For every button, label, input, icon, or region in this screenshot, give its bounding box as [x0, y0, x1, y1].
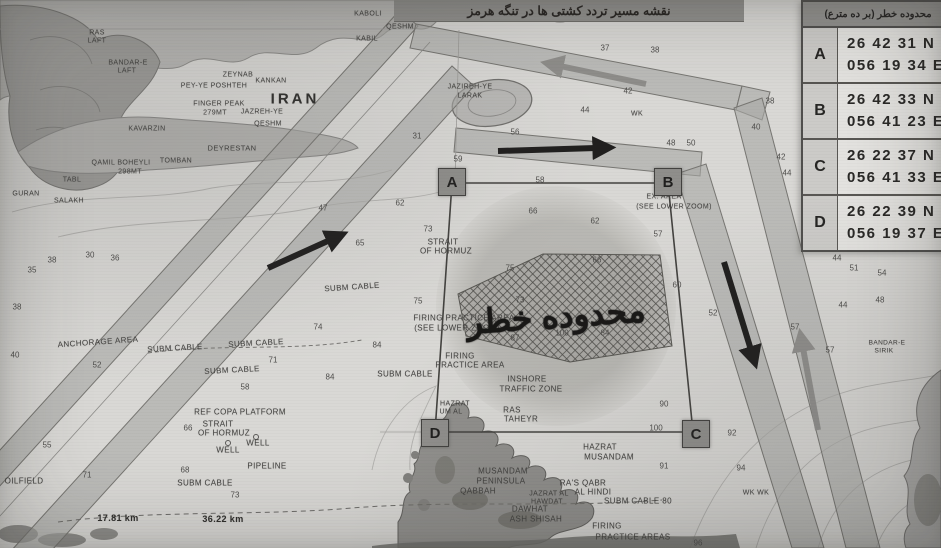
map-label: QABBAH [460, 487, 496, 496]
depth-number: 68 [181, 466, 190, 475]
depth-number: 91 [660, 462, 669, 471]
map-label: 17.81 km [97, 513, 138, 523]
depth-number: 51 [850, 264, 859, 273]
map-label: TRAFFIC ZONE [499, 385, 562, 394]
map-label: KANKAN [255, 78, 286, 85]
map-label: QESHM [386, 24, 414, 31]
depth-number: 58 [241, 383, 250, 392]
depth-number: 54 [878, 269, 887, 278]
map-label: (SEE LOWER ZOOM) [636, 204, 712, 211]
map-label: STRAIT [203, 420, 234, 429]
depth-number: 42 [624, 87, 633, 96]
depth-number: 40 [752, 123, 761, 132]
map-label: RA'S QABR [560, 479, 606, 488]
map-label: HAZRAT [583, 443, 617, 452]
coord-row-b: B 26 42 33 N 056 41 23 E [803, 84, 941, 140]
map-label: MUSANDAM [584, 453, 634, 462]
depth-number: 36 [111, 254, 120, 263]
map-label: STRAIT [428, 238, 459, 247]
map-title: نقشه مسیر تردد کشتی ها در تنگه هرمز [467, 3, 670, 18]
map-label: REF COPA PLATFORM [194, 408, 286, 417]
depth-number: 57 [791, 323, 800, 332]
depth-number: 59 [454, 155, 463, 164]
map-label: SUBM CABLE 80 [604, 497, 672, 506]
depth-number: 58 [536, 176, 545, 185]
map-label: PEY-YE POSHTEH [181, 83, 247, 90]
depth-number: 52 [93, 361, 102, 370]
depth-number: 96 [694, 539, 703, 548]
map-label: 36.22 km [202, 514, 243, 524]
map-label: SIRIK [875, 348, 894, 355]
map-label: WK [631, 111, 643, 118]
depth-number: 47 [319, 204, 328, 213]
coord-row-id: B [803, 84, 838, 138]
coord-lat: 26 22 37 N [847, 145, 941, 167]
coord-row-d: D 26 22 39 N 056 19 37 E [803, 196, 941, 250]
map-label: 298MT [118, 169, 142, 176]
corner-marker-a: A [438, 168, 466, 196]
depth-number: 44 [833, 254, 842, 263]
depth-number: 38 [48, 256, 57, 265]
depth-number: 71 [269, 356, 278, 365]
depth-number: 73 [231, 491, 240, 500]
depth-number: 71 [83, 471, 92, 480]
map-label: OF HORMUZ [420, 247, 472, 256]
depth-number: 42 [777, 153, 786, 162]
coord-lat: 26 42 31 N [847, 33, 941, 55]
map-label: FINGER PEAK [193, 101, 244, 108]
depth-number: 48 [876, 296, 885, 305]
depth-number: 57 [654, 230, 663, 239]
depth-number: 92 [728, 429, 737, 438]
map-label: RAS [503, 406, 521, 415]
map-label: UM AL [439, 409, 462, 416]
map-label: LARAK [458, 93, 483, 100]
depth-number: 100 [649, 424, 662, 433]
corner-marker-c: C [682, 420, 710, 448]
depth-number: 57 [826, 346, 835, 355]
map-label: SALAKH [54, 198, 84, 205]
map-label: PRACTICE AREAS [596, 533, 671, 542]
map-label: WK WK [743, 490, 770, 497]
map-label: WELL [216, 446, 239, 455]
depth-number: 66 [529, 207, 538, 216]
depth-number: 44 [783, 169, 792, 178]
map-label: JAZREH-YE [241, 109, 284, 116]
map-title-bar: نقشه مسیر تردد کشتی ها در تنگه هرمز [394, 0, 744, 22]
coord-lon: 056 41 23 E [847, 111, 941, 133]
coord-lon: 056 41 33 E [847, 167, 941, 189]
map-label: LAFT [88, 38, 107, 45]
coord-row-id: A [803, 28, 838, 82]
coords-table-header: محدوده خطر (بر ده مترع) [803, 2, 941, 28]
coords-table: محدوده خطر (بر ده مترع) A 26 42 31 N 056… [801, 0, 941, 252]
map-label: ZEYNAB [223, 72, 253, 79]
map-label: ASH SHISAH [510, 515, 562, 524]
map-label: INSHORE [507, 375, 546, 384]
arrow-east-black [498, 148, 596, 151]
map-label: PENINSULA [477, 477, 526, 486]
map-label: GURAN [12, 191, 39, 198]
map-label: KABIL [356, 36, 378, 43]
map-label: FIRING [592, 522, 622, 531]
coord-lon: 056 19 37 E [847, 223, 941, 245]
depth-number: 35 [28, 266, 37, 275]
corner-marker-d: D [421, 419, 449, 447]
map-label: PRACTICE AREA [435, 361, 504, 370]
map-label: TABL [63, 177, 82, 184]
depth-number: 66 [593, 256, 602, 265]
map-label: PIPELINE [247, 462, 286, 471]
depth-number: 44 [581, 106, 590, 115]
map-label: QESHM [254, 121, 282, 128]
coord-row-id: C [803, 140, 838, 194]
depth-number: 44 [839, 301, 848, 310]
coord-row-id: D [803, 196, 838, 250]
coast-detail [914, 474, 941, 526]
coord-row-c: C 26 22 37 N 056 41 33 E [803, 140, 941, 196]
depth-number: 38 [766, 97, 775, 106]
depth-number: 52 [709, 309, 718, 318]
depth-number: 30 [86, 251, 95, 260]
depth-number: 66 [184, 424, 193, 433]
depth-number: 38 [651, 46, 660, 55]
map-label: JAZRAT AL [529, 491, 569, 498]
depth-number: 75 [414, 297, 423, 306]
map-label: SUBM CABLE [177, 479, 233, 488]
map-label: DEYRESTAN [208, 144, 257, 153]
map-label: TOMBAN [160, 158, 192, 165]
depth-number: 74 [314, 323, 323, 332]
map-label: BANDAR-E [869, 340, 906, 347]
map-label: KAVARZIN [128, 126, 165, 133]
map-label: RAS [89, 30, 105, 37]
depth-number: 48 [667, 139, 676, 148]
depth-number: 37 [601, 44, 610, 53]
map-label: 279MT [203, 110, 227, 117]
depth-number: 50 [687, 139, 696, 148]
map-label: MUSANDAM [478, 467, 528, 476]
map-label: BANDAR-E [108, 60, 147, 67]
depth-number: 62 [396, 199, 405, 208]
map-label: OILFIELD [5, 477, 44, 486]
depth-number: 84 [326, 373, 335, 382]
map-label: KABOLI [354, 11, 382, 18]
map-label: DAWHAT [512, 505, 548, 514]
coord-lon: 056 19 34 E [847, 55, 941, 77]
depth-number: 40 [11, 351, 20, 360]
chart-photo: IRANSTRAITOF HORMUZSTRAITOF HORMUZSUBM C… [0, 0, 941, 548]
depth-number: 90 [660, 400, 669, 409]
depth-number: 65 [356, 239, 365, 248]
depth-number: 56 [511, 128, 520, 137]
nautical-chart-graphic [0, 0, 941, 548]
coord-lat: 26 42 33 N [847, 89, 941, 111]
depth-number: 62 [591, 217, 600, 226]
depth-number: 73 [424, 225, 433, 234]
map-label: SUBM CABLE [377, 370, 433, 379]
depth-number: 60 [673, 281, 682, 290]
coord-row-a: A 26 42 31 N 056 19 34 E [803, 28, 941, 84]
map-label: IRAN [271, 91, 320, 108]
map-label: JAZIREH-YE [448, 84, 493, 91]
depth-number: 55 [43, 441, 52, 450]
map-label: OF HORMUZ [198, 429, 250, 438]
coord-lat: 26 22 39 N [847, 201, 941, 223]
map-label: WELL [246, 439, 269, 448]
map-label: LAFT [118, 68, 137, 75]
map-label: TAHEYR [504, 415, 538, 424]
map-label: FIRING [445, 352, 475, 361]
map-label: QAMIL BOHEYLI [91, 160, 150, 167]
depth-number: 84 [373, 341, 382, 350]
depth-number: 94 [737, 464, 746, 473]
depth-number: 38 [13, 303, 22, 312]
depth-number: 31 [413, 132, 422, 141]
corner-marker-b: B [654, 168, 682, 196]
map-label: HAZRAT [440, 401, 470, 408]
map-label: AL HINDI [575, 488, 612, 497]
depth-number: 75 [506, 264, 515, 273]
